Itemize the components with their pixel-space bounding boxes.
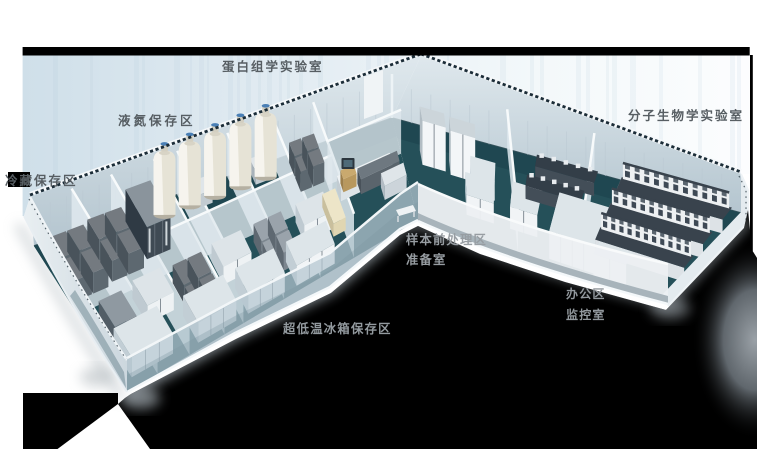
svg-text:准备室: 准备室 [406, 252, 447, 267]
svg-text:办公区: 办公区 [566, 286, 606, 301]
svg-text:蛋白组学实验室: 蛋白组学实验室 [222, 59, 324, 74]
svg-text:监控室: 监控室 [566, 307, 606, 322]
svg-text:冷藏保存区: 冷藏保存区 [5, 173, 78, 188]
svg-text:样本前处理区: 样本前处理区 [406, 232, 487, 247]
svg-text:超低温冰箱保存区: 超低温冰箱保存区 [282, 321, 392, 336]
svg-text:分子生物学实验室: 分子生物学实验室 [628, 108, 744, 123]
svg-text:液氮保存区: 液氮保存区 [118, 113, 196, 128]
